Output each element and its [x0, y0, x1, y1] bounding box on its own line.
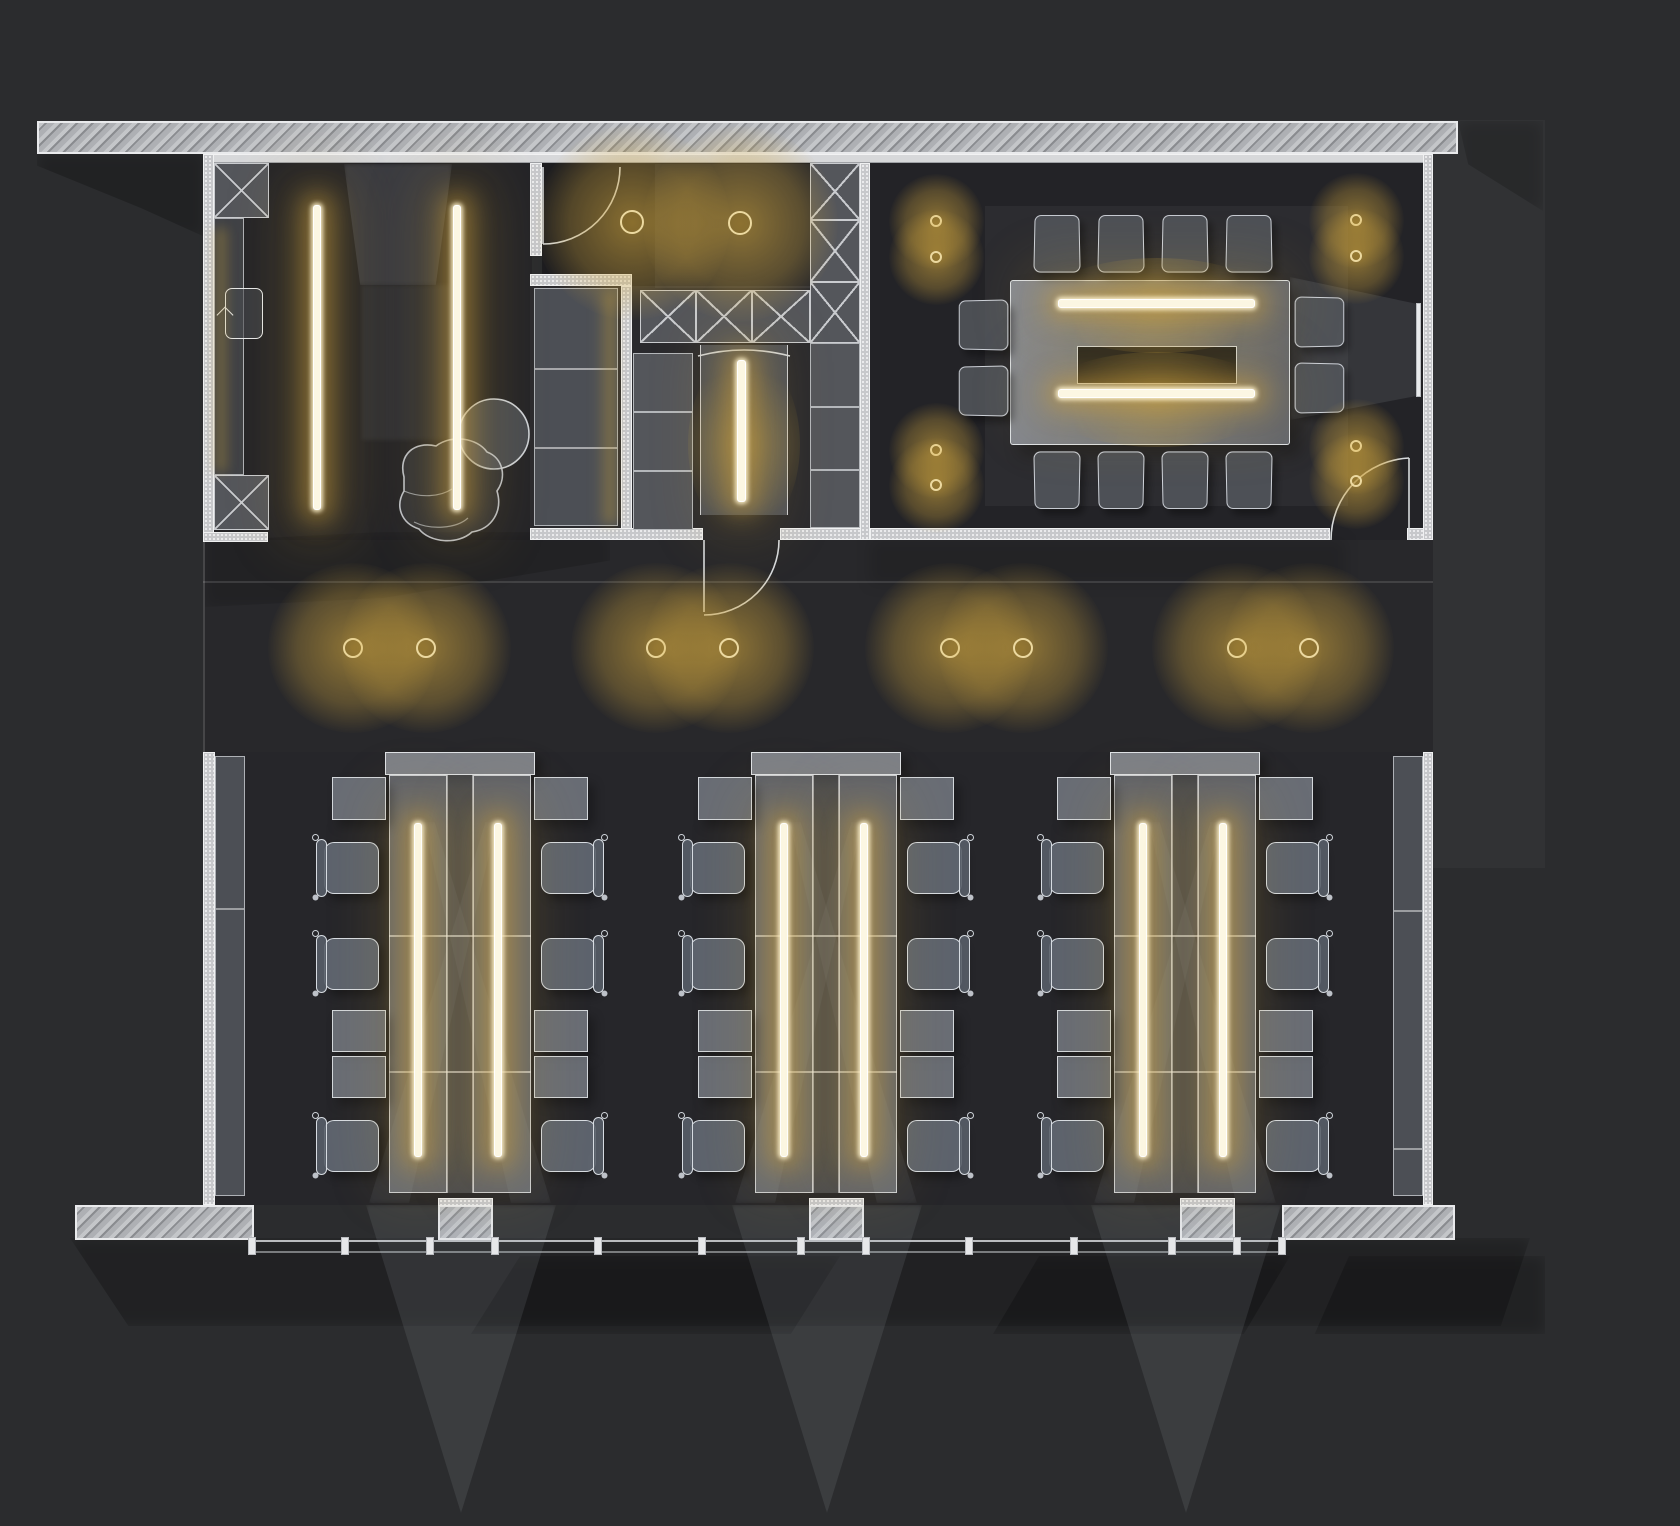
window-mullion-1 — [248, 1237, 256, 1255]
window-mullion-6 — [698, 1237, 706, 1255]
window-mullion-10 — [1070, 1237, 1078, 1255]
window-mullion-11 — [1168, 1237, 1176, 1255]
window-mullion-12 — [1233, 1237, 1241, 1255]
window-mullion-9 — [965, 1237, 973, 1255]
window-mullion-3 — [426, 1237, 434, 1255]
window-mullion-4 — [491, 1237, 499, 1255]
window-mullion-2 — [341, 1237, 349, 1255]
window-mullion-7 — [797, 1237, 805, 1255]
window-mullion-5 — [594, 1237, 602, 1255]
window-mullions — [0, 0, 1680, 1526]
floor-plan — [0, 0, 1680, 1526]
window-mullion-13 — [1278, 1237, 1286, 1255]
window-mullion-8 — [862, 1237, 870, 1255]
